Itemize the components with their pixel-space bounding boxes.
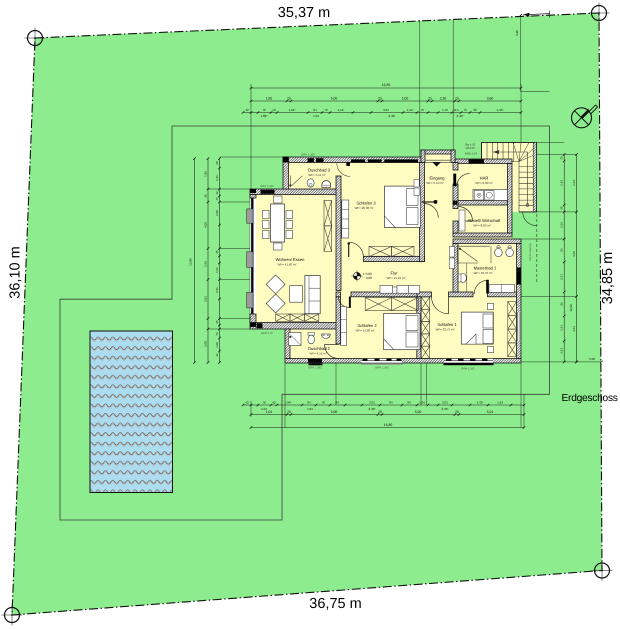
svg-text:76: 76 xyxy=(215,197,219,201)
svg-text:Masterbad 1: Masterbad 1 xyxy=(474,266,497,271)
svg-text:76: 76 xyxy=(262,108,266,112)
svg-text:1,86: 1,86 xyxy=(203,171,207,177)
svg-text:1,85: 1,85 xyxy=(266,96,273,100)
svg-text:76: 76 xyxy=(420,108,424,112)
svg-text:4,66: 4,66 xyxy=(572,251,576,257)
svg-text:76: 76 xyxy=(324,108,328,112)
svg-text:2,30: 2,30 xyxy=(440,96,447,100)
svg-text:WF= 41,60 m²: WF= 41,60 m² xyxy=(277,262,296,266)
svg-text:1,43⁵: 1,43⁵ xyxy=(496,108,504,112)
svg-text:WF= 10,70 m²: WF= 10,70 m² xyxy=(473,271,492,275)
svg-text:1,43⁵: 1,43⁵ xyxy=(476,400,484,404)
svg-text:Duschbad 3: Duschbad 3 xyxy=(308,168,331,173)
svg-text:25: 25 xyxy=(215,320,219,324)
svg-text:1,94⁵: 1,94⁵ xyxy=(284,400,292,404)
svg-text:25: 25 xyxy=(428,96,432,100)
svg-text:HAR: HAR xyxy=(480,176,489,181)
svg-text:5,00: 5,00 xyxy=(589,357,595,361)
svg-text:2,51: 2,51 xyxy=(560,274,564,280)
svg-text:WF= 4,11 m²: WF= 4,11 m² xyxy=(309,351,326,355)
svg-text:− 0,08: − 0,08 xyxy=(363,276,372,280)
svg-text:18x160: 18x160 xyxy=(465,146,475,150)
svg-text:25: 25 xyxy=(287,96,291,100)
svg-text:1,01: 1,01 xyxy=(307,407,313,411)
svg-text:2,48⁵: 2,48⁵ xyxy=(388,114,396,118)
svg-text:12,90: 12,90 xyxy=(189,258,193,266)
svg-text:1,01: 1,01 xyxy=(313,114,319,118)
svg-text:12,90: 12,90 xyxy=(569,304,573,312)
svg-text:2,49⁵: 2,49⁵ xyxy=(441,407,449,411)
svg-text:1,66: 1,66 xyxy=(215,175,219,181)
svg-text:86: 86 xyxy=(560,248,564,252)
svg-text:2,63: 2,63 xyxy=(572,180,576,186)
svg-text:1,94⁵: 1,94⁵ xyxy=(288,108,296,112)
svg-text:BRH 1,385: BRH 1,385 xyxy=(461,368,475,371)
svg-text:4,00: 4,00 xyxy=(203,222,207,228)
svg-text:42: 42 xyxy=(215,353,219,357)
svg-text:WF= 8,60 m²: WF= 8,60 m² xyxy=(473,223,490,227)
svg-text:WF= 23,75 m²: WF= 23,75 m² xyxy=(435,327,454,331)
svg-text:4,63: 4,63 xyxy=(572,326,576,332)
svg-text:WF= 14,60 m²: WF= 14,60 m² xyxy=(355,328,374,332)
svg-text:36,10 m: 36,10 m xyxy=(8,246,24,298)
svg-text:3,01: 3,01 xyxy=(442,400,448,404)
svg-text:Schlafen 1: Schlafen 1 xyxy=(437,322,457,327)
svg-text:3,90: 3,90 xyxy=(515,30,519,36)
svg-text:2,66: 2,66 xyxy=(203,261,207,267)
svg-text:25: 25 xyxy=(378,96,382,100)
svg-text:35,37 m: 35,37 m xyxy=(278,5,330,21)
svg-text:3,51: 3,51 xyxy=(203,296,207,302)
svg-text:25: 25 xyxy=(560,206,564,210)
svg-text:BRH 1,345: BRH 1,345 xyxy=(260,185,274,188)
svg-text:WF= 5,10 m²: WF= 5,10 m² xyxy=(426,181,443,185)
svg-text:Wohnen/ Essen: Wohnen/ Essen xyxy=(276,257,306,262)
svg-text:42: 42 xyxy=(272,400,276,404)
svg-text:Flur: Flur xyxy=(390,271,398,276)
svg-text:5,00: 5,00 xyxy=(415,410,422,414)
svg-text:WF= 8,00 m²: WF= 8,00 m² xyxy=(475,181,492,185)
svg-text:1,01: 1,01 xyxy=(266,410,273,414)
svg-text:Schlafen 3: Schlafen 3 xyxy=(356,201,376,206)
svg-text:5,00: 5,00 xyxy=(331,410,338,414)
svg-text:3,01: 3,01 xyxy=(369,400,375,404)
svg-text:42: 42 xyxy=(245,108,249,112)
svg-text:2,43: 2,43 xyxy=(560,180,564,186)
svg-text:16,80: 16,80 xyxy=(384,423,393,427)
svg-text:2,66: 2,66 xyxy=(560,222,564,228)
svg-text:84: 84 xyxy=(307,400,311,404)
svg-text:20: 20 xyxy=(455,410,459,414)
svg-text:25: 25 xyxy=(203,194,207,198)
svg-text:5,00: 5,00 xyxy=(402,96,409,100)
svg-text:3,01: 3,01 xyxy=(383,108,389,112)
svg-text:34,85 m: 34,85 m xyxy=(600,252,616,304)
svg-text:76: 76 xyxy=(321,400,325,404)
svg-text:86: 86 xyxy=(560,302,564,306)
svg-text:25: 25 xyxy=(215,250,219,254)
svg-text:2,51: 2,51 xyxy=(215,287,219,293)
svg-text:5,01: 5,01 xyxy=(487,410,494,414)
svg-text:WF= 20,30 m²: WF= 20,30 m² xyxy=(354,206,373,210)
svg-text:Eingang: Eingang xyxy=(429,176,445,181)
svg-text:76: 76 xyxy=(215,332,219,336)
svg-text:WF= 21,21 m²: WF= 21,21 m² xyxy=(386,276,405,280)
svg-text:Erdgeschoss: Erdgeschoss xyxy=(562,393,618,404)
svg-text:84: 84 xyxy=(313,108,317,112)
svg-text:25: 25 xyxy=(455,96,459,100)
svg-text:20: 20 xyxy=(215,161,219,165)
svg-text:76: 76 xyxy=(463,108,467,112)
svg-text:1,11⁵: 1,11⁵ xyxy=(338,108,346,112)
svg-text:1,11⁵: 1,11⁵ xyxy=(407,108,415,112)
svg-text:2,41: 2,41 xyxy=(560,325,564,331)
svg-text:11,5: 11,5 xyxy=(453,108,459,112)
svg-text:84: 84 xyxy=(389,400,393,404)
svg-text:BRH 1,385: BRH 1,385 xyxy=(301,153,315,156)
svg-text:16,80: 16,80 xyxy=(382,83,391,87)
svg-text:1,84: 1,84 xyxy=(419,400,425,404)
svg-text:Schlafen 2: Schlafen 2 xyxy=(357,323,377,328)
svg-text:84: 84 xyxy=(407,400,411,404)
svg-text:3,60: 3,60 xyxy=(487,96,494,100)
svg-text:BRH 0,00: BRH 0,00 xyxy=(261,332,273,335)
svg-text:Abstell/ Wirtschaft: Abstell/ Wirtschaft xyxy=(468,218,502,223)
svg-text:20: 20 xyxy=(378,410,382,414)
svg-text:2,00: 2,00 xyxy=(215,210,219,216)
svg-text:WF= 5,11 m²: WF= 5,11 m² xyxy=(308,173,325,177)
svg-text:BRH 1,385: BRH 1,385 xyxy=(308,366,322,369)
svg-text:1,51: 1,51 xyxy=(215,267,219,273)
svg-text:20: 20 xyxy=(287,410,291,414)
svg-text:5,00: 5,00 xyxy=(331,96,338,100)
svg-text:1,00: 1,00 xyxy=(215,342,219,348)
svg-text:1,63: 1,63 xyxy=(497,400,503,404)
svg-text:2,49⁵: 2,49⁵ xyxy=(368,407,376,411)
svg-text:Dachvorsprung: Dachvorsprung xyxy=(529,243,532,261)
svg-text:76: 76 xyxy=(262,400,266,404)
svg-text:2,00: 2,00 xyxy=(203,341,207,347)
svg-text:1,88⁵: 1,88⁵ xyxy=(260,114,268,118)
svg-text:42: 42 xyxy=(245,400,249,404)
svg-text:2,40⁵: 2,40⁵ xyxy=(456,114,464,118)
svg-text:20: 20 xyxy=(560,156,564,160)
svg-text:1,76: 1,76 xyxy=(442,108,448,112)
svg-text:Duschbad 2: Duschbad 2 xyxy=(308,346,331,351)
svg-text:36: 36 xyxy=(473,108,477,112)
svg-text:4,63: 4,63 xyxy=(560,348,564,354)
svg-text:BRH 1,43: BRH 1,43 xyxy=(465,152,478,156)
svg-text:42: 42 xyxy=(215,191,219,195)
svg-text:BRH 1,385: BRH 1,385 xyxy=(375,367,389,370)
svg-text:36,75 m: 36,75 m xyxy=(309,596,361,612)
svg-text:42: 42 xyxy=(272,108,276,112)
